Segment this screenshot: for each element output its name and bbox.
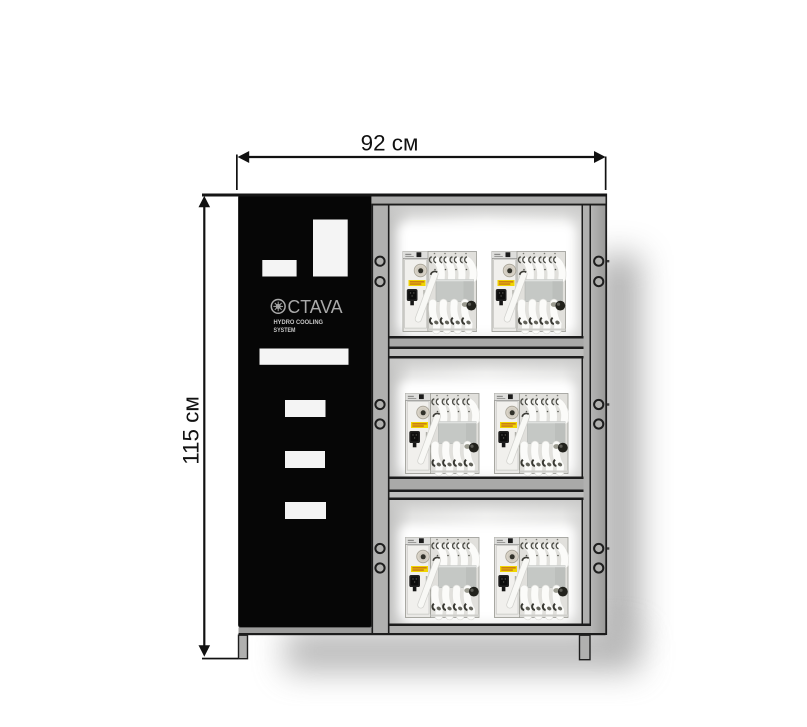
- svg-text:115 см: 115 см: [178, 396, 203, 465]
- svg-text:SYSTEM: SYSTEM: [274, 328, 296, 334]
- svg-text:92 см: 92 см: [361, 131, 419, 156]
- svg-text:CTAVA: CTAVA: [288, 296, 344, 317]
- svg-text:HYDRO COOLING: HYDRO COOLING: [274, 320, 324, 326]
